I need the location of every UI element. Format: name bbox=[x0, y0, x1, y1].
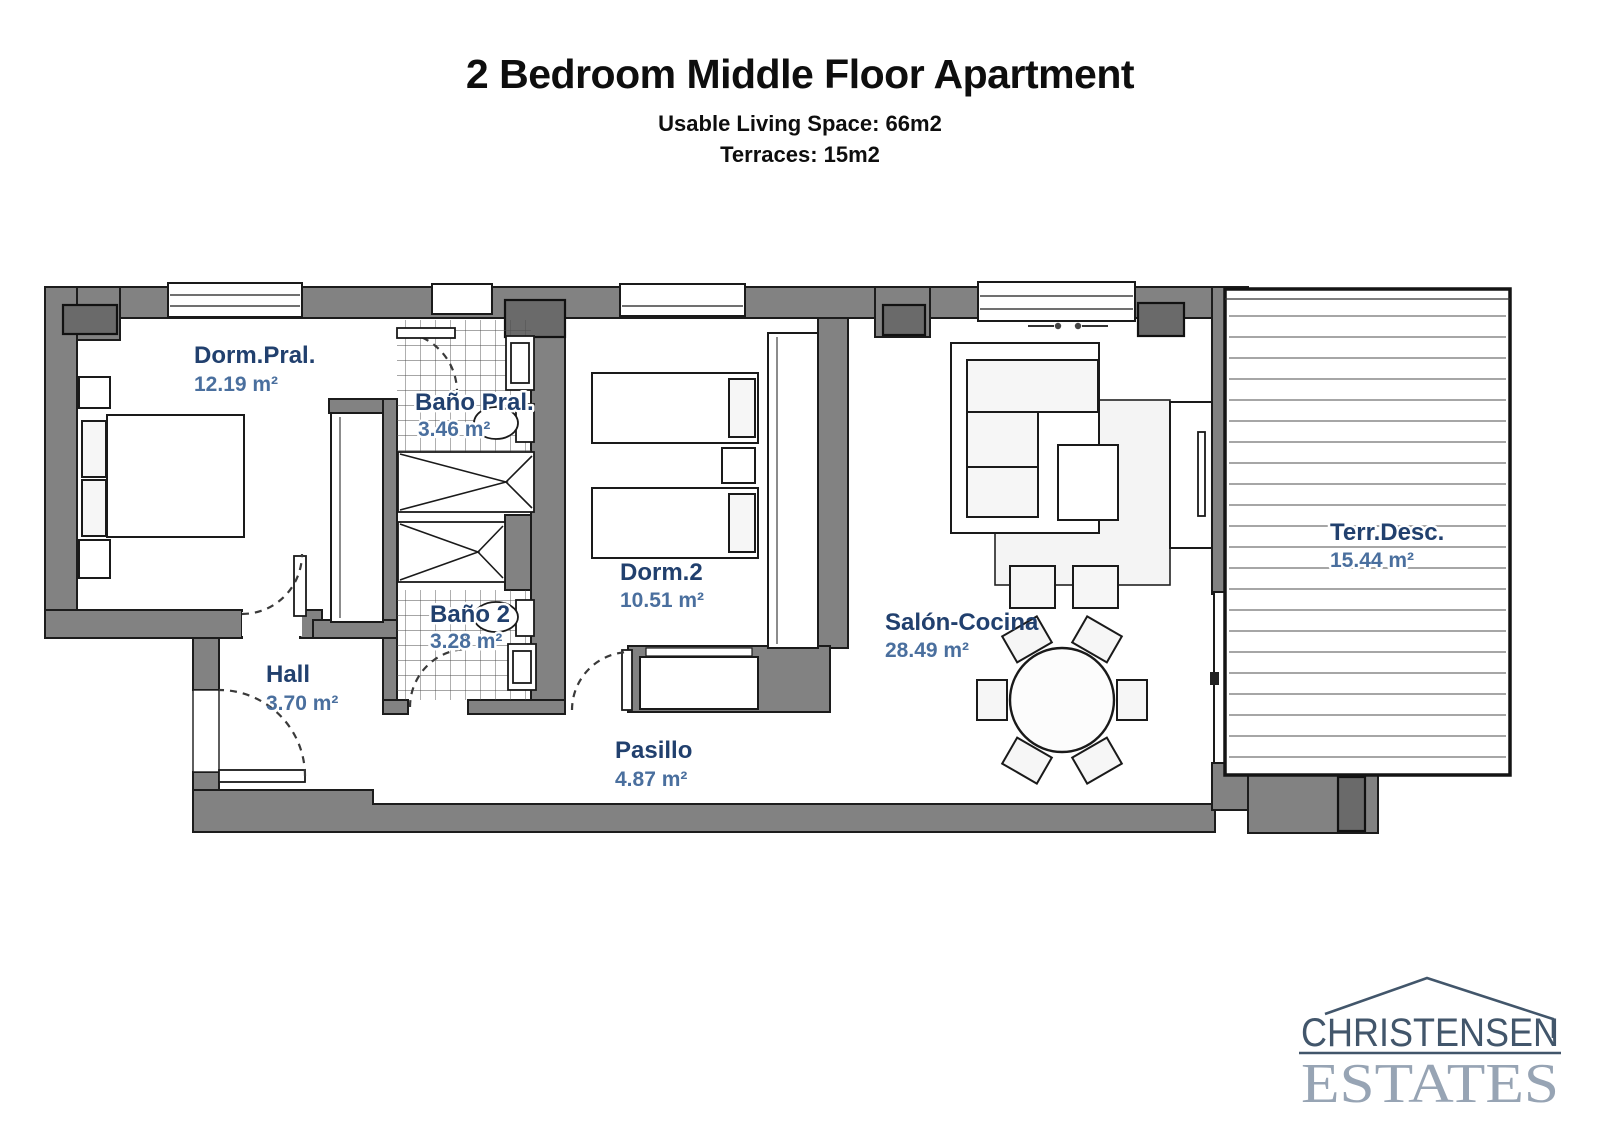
furniture-dorm-pral bbox=[79, 377, 383, 622]
sink bbox=[506, 336, 534, 390]
room-label-bano-2: Baño 2 3.28 m² bbox=[430, 601, 510, 653]
svg-text:Dorm.2: Dorm.2 bbox=[620, 559, 703, 586]
wardrobe bbox=[768, 333, 818, 648]
room-label-pasillo: Pasillo 4.87 m² bbox=[615, 737, 692, 791]
svg-text:Hall: Hall bbox=[266, 661, 310, 688]
floor-plan-page: 2 Bedroom Middle Floor Apartment Usable … bbox=[0, 0, 1600, 1131]
double-bed bbox=[107, 415, 244, 537]
window-dorm-2 bbox=[620, 284, 745, 316]
pillow bbox=[82, 480, 106, 536]
svg-text:Pasillo: Pasillo bbox=[615, 737, 692, 764]
svg-text:3.28 m²: 3.28 m² bbox=[430, 630, 502, 653]
svg-text:4.87 m²: 4.87 m² bbox=[615, 768, 687, 791]
svg-text:3.70 m²: 3.70 m² bbox=[266, 692, 338, 715]
svg-text:10.51 m²: 10.51 m² bbox=[620, 589, 704, 612]
door-handle bbox=[1210, 672, 1219, 685]
tv-unit bbox=[1170, 402, 1212, 548]
furniture-salon bbox=[951, 343, 1212, 784]
pouf bbox=[1010, 566, 1055, 608]
sink bbox=[508, 644, 536, 690]
round-dining-table bbox=[1010, 648, 1114, 752]
slide-direction-arrows bbox=[1028, 323, 1108, 329]
logo-line1: CHRISTENSEN bbox=[1301, 1011, 1559, 1055]
page-title: 2 Bedroom Middle Floor Apartment bbox=[466, 51, 1135, 97]
svg-text:12.19 m²: 12.19 m² bbox=[194, 373, 278, 396]
svg-text:Dorm.Pral.: Dorm.Pral. bbox=[194, 342, 315, 369]
nightstand bbox=[79, 540, 110, 578]
svg-text:Baño Pral.: Baño Pral. bbox=[415, 389, 534, 416]
room-label-dorm-pral: Dorm.Pral. 12.19 m² bbox=[194, 342, 315, 396]
nightstand bbox=[722, 448, 755, 483]
svg-text:15.44 m²: 15.44 m² bbox=[1330, 549, 1414, 572]
shower-tub bbox=[398, 522, 505, 582]
built-in-closet bbox=[640, 648, 758, 709]
shelf bbox=[397, 328, 455, 338]
room-label-dorm-2: Dorm.2 10.51 m² bbox=[620, 559, 704, 612]
coffee-table bbox=[1058, 445, 1118, 520]
subtitle-living-space: Usable Living Space: 66m2 bbox=[658, 111, 942, 136]
door-dorm-2 bbox=[572, 650, 632, 710]
wardrobe bbox=[331, 413, 383, 622]
bathtub bbox=[398, 452, 534, 512]
svg-text:Salón-Cocina: Salón-Cocina bbox=[885, 609, 1039, 636]
dining-set bbox=[977, 616, 1147, 783]
brand-logo: CHRISTENSEN ESTATES bbox=[1299, 978, 1561, 1115]
header: 2 Bedroom Middle Floor Apartment Usable … bbox=[466, 51, 1135, 167]
logo-line2: ESTATES bbox=[1301, 1053, 1559, 1115]
floor-plan-svg: 2 Bedroom Middle Floor Apartment Usable … bbox=[0, 0, 1600, 1131]
svg-text:28.49 m²: 28.49 m² bbox=[885, 639, 969, 662]
svg-text:Terr.Desc.: Terr.Desc. bbox=[1330, 519, 1444, 546]
pouf bbox=[1073, 566, 1118, 608]
pillow bbox=[729, 379, 755, 437]
svg-text:3.46 m²: 3.46 m² bbox=[418, 418, 490, 441]
chair bbox=[977, 680, 1007, 720]
window-bano-pral bbox=[432, 284, 492, 314]
pillow bbox=[729, 494, 755, 552]
subtitle-terraces: Terraces: 15m2 bbox=[720, 142, 880, 167]
pillow bbox=[82, 421, 106, 477]
door-dorm-pral bbox=[242, 554, 306, 636]
nightstand bbox=[79, 377, 110, 408]
sliding-door-salon bbox=[978, 282, 1135, 329]
room-label-hall: Hall 3.70 m² bbox=[266, 661, 338, 715]
window-dorm-pral bbox=[168, 283, 302, 317]
chair bbox=[1117, 680, 1147, 720]
svg-text:Baño 2: Baño 2 bbox=[430, 601, 510, 628]
